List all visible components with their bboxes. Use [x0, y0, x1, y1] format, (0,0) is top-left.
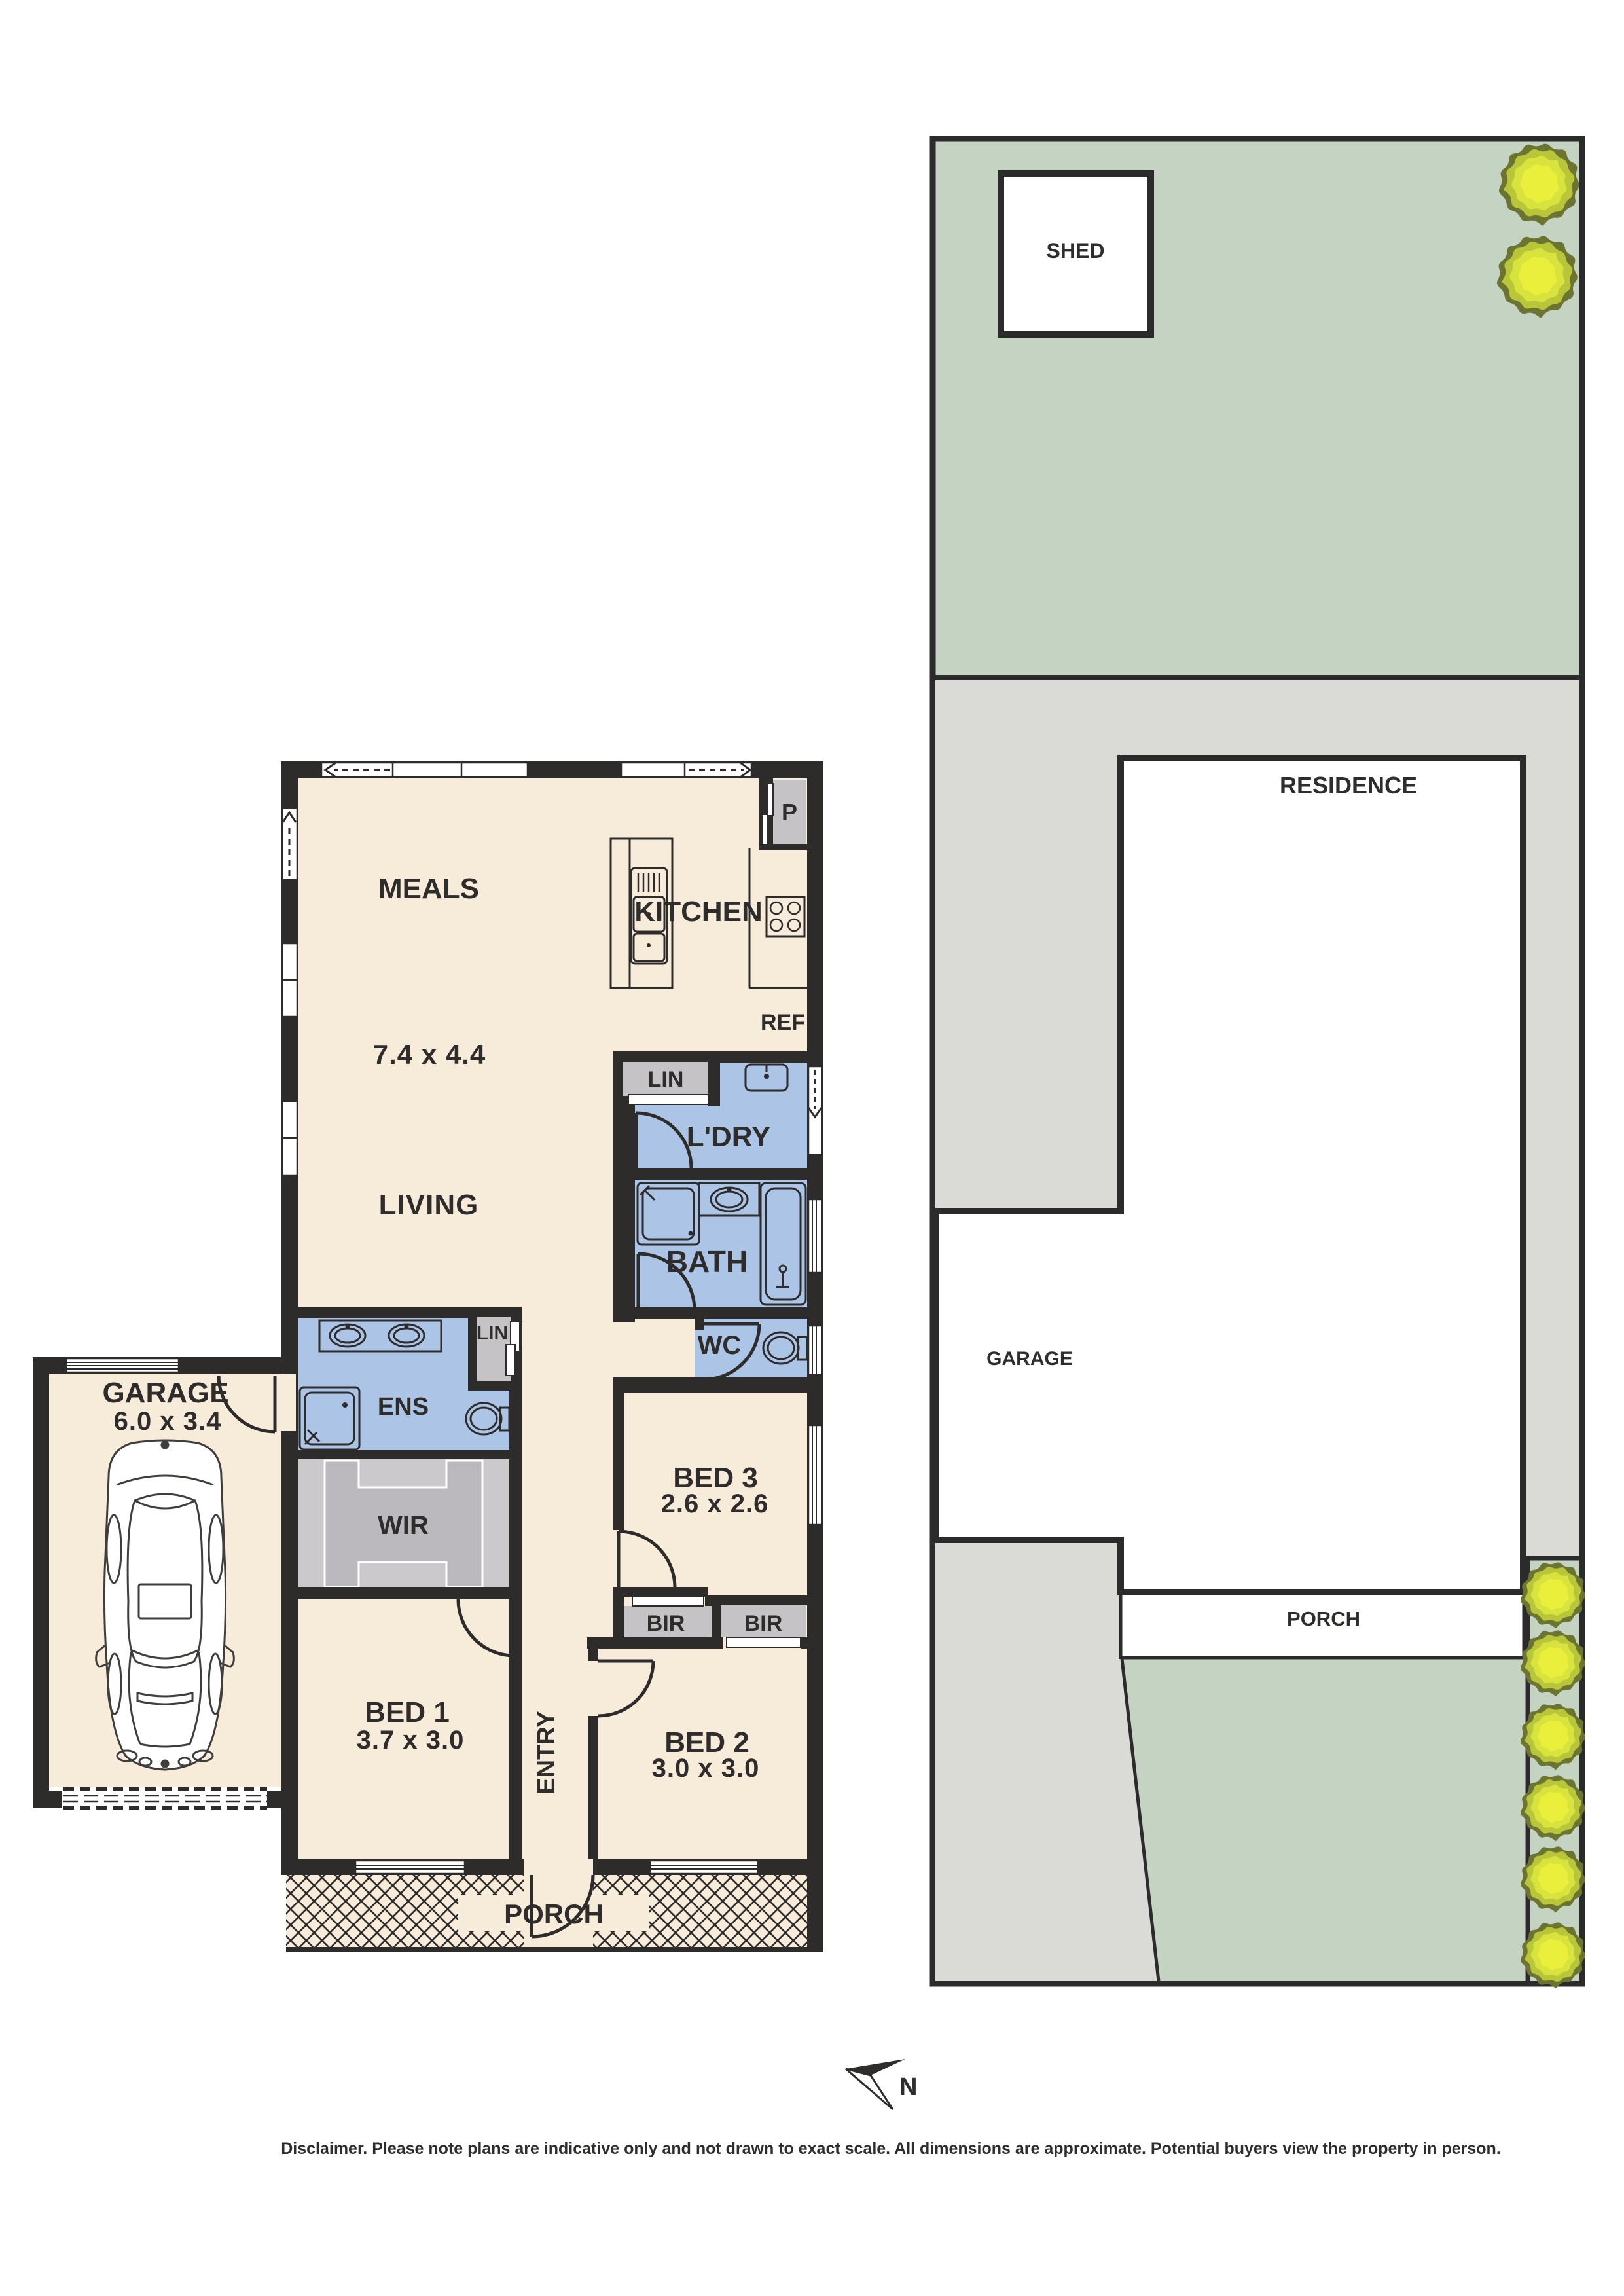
- svg-text:SHED: SHED: [1047, 239, 1105, 263]
- svg-text:BIR: BIR: [744, 1611, 783, 1636]
- svg-text:BED 1: BED 1: [365, 1696, 450, 1728]
- svg-text:ENTRY: ENTRY: [533, 1711, 560, 1794]
- svg-text:6.0 x 3.4: 6.0 x 3.4: [114, 1407, 222, 1436]
- svg-text:N: N: [899, 2073, 917, 2101]
- svg-text:LIN: LIN: [648, 1067, 684, 1092]
- svg-text:7.4 x 4.4: 7.4 x 4.4: [373, 1039, 486, 1070]
- svg-text:RESIDENCE: RESIDENCE: [1280, 772, 1417, 799]
- svg-text:GARAGE: GARAGE: [102, 1377, 228, 1409]
- svg-text:3.0 x 3.0: 3.0 x 3.0: [652, 1754, 760, 1783]
- svg-text:Disclaimer. Please note plans: Disclaimer. Please note plans are indica…: [281, 2140, 1501, 2158]
- svg-text:MEALS: MEALS: [378, 873, 479, 905]
- svg-text:LIN: LIN: [477, 1322, 508, 1344]
- svg-text:2.6 x 2.6: 2.6 x 2.6: [661, 1489, 769, 1518]
- svg-text:REF: REF: [761, 1010, 805, 1035]
- svg-text:P: P: [782, 799, 797, 826]
- svg-text:PORCH: PORCH: [1287, 1607, 1360, 1630]
- svg-text:WC: WC: [698, 1331, 742, 1360]
- svg-text:L'DRY: L'DRY: [687, 1121, 771, 1153]
- svg-text:WIR: WIR: [378, 1511, 429, 1540]
- svg-text:BIR: BIR: [647, 1611, 685, 1636]
- svg-text:ENS: ENS: [378, 1393, 429, 1421]
- svg-text:3.7 x 3.0: 3.7 x 3.0: [357, 1726, 465, 1755]
- svg-text:BATH: BATH: [666, 1245, 748, 1279]
- svg-text:PORCH: PORCH: [504, 1899, 604, 1929]
- svg-text:LIVING: LIVING: [379, 1189, 479, 1221]
- svg-text:KITCHEN: KITCHEN: [634, 896, 763, 928]
- svg-text:GARAGE: GARAGE: [986, 1348, 1073, 1370]
